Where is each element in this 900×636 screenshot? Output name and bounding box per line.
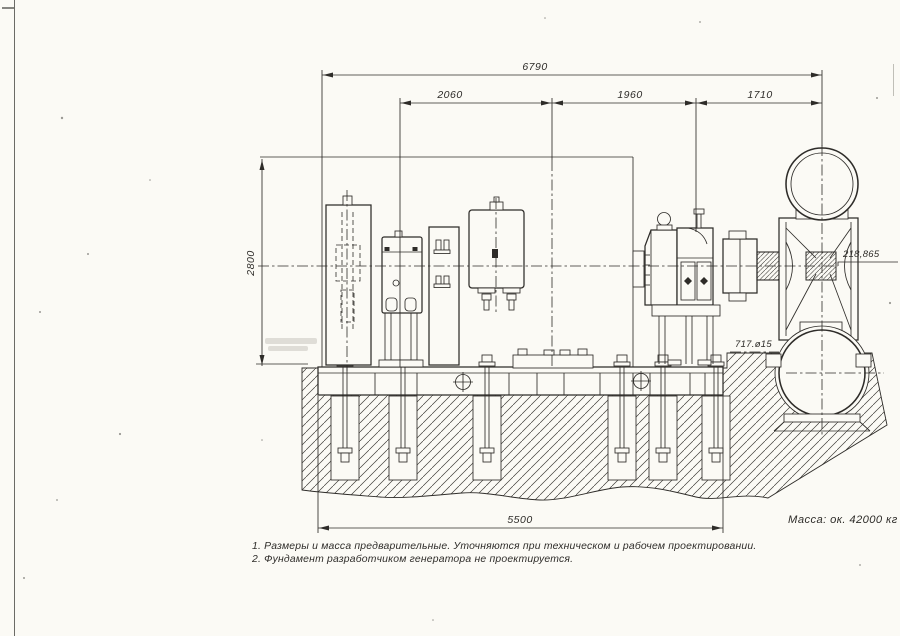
mass-note: Масса: ок. 42000 кг	[788, 514, 898, 526]
foundation-detail-text: 717.ø15	[735, 339, 772, 350]
note-2: 2. Фундамент разработчиком генератора не…	[251, 553, 573, 565]
auxiliary-cabinet	[429, 227, 459, 365]
dim-text-section-b: 1960	[617, 89, 642, 101]
axis-elevation-text: 218,865	[842, 249, 880, 260]
dim-text-foundation-length: 5500	[507, 514, 532, 526]
generator-end-unit	[326, 196, 371, 365]
machine-assembly-drawing: 6790 2060 1960 1710 2800 5500 218,86	[0, 0, 900, 636]
drawing-sheet: 6790 2060 1960 1710 2800 5500 218,86	[0, 0, 900, 636]
dim-text-section-c: 1710	[747, 89, 772, 101]
dim-text-overall: 6790	[522, 61, 547, 73]
bearing-pedestal-1	[379, 231, 423, 367]
dim-text-height: 2800	[245, 250, 257, 276]
sub-base-plate	[513, 349, 593, 368]
dim-text-section-a: 2060	[436, 89, 462, 101]
note-1: 1. Размеры и масса предварительные. Уточ…	[252, 540, 756, 552]
bedplate-frame	[318, 367, 723, 395]
